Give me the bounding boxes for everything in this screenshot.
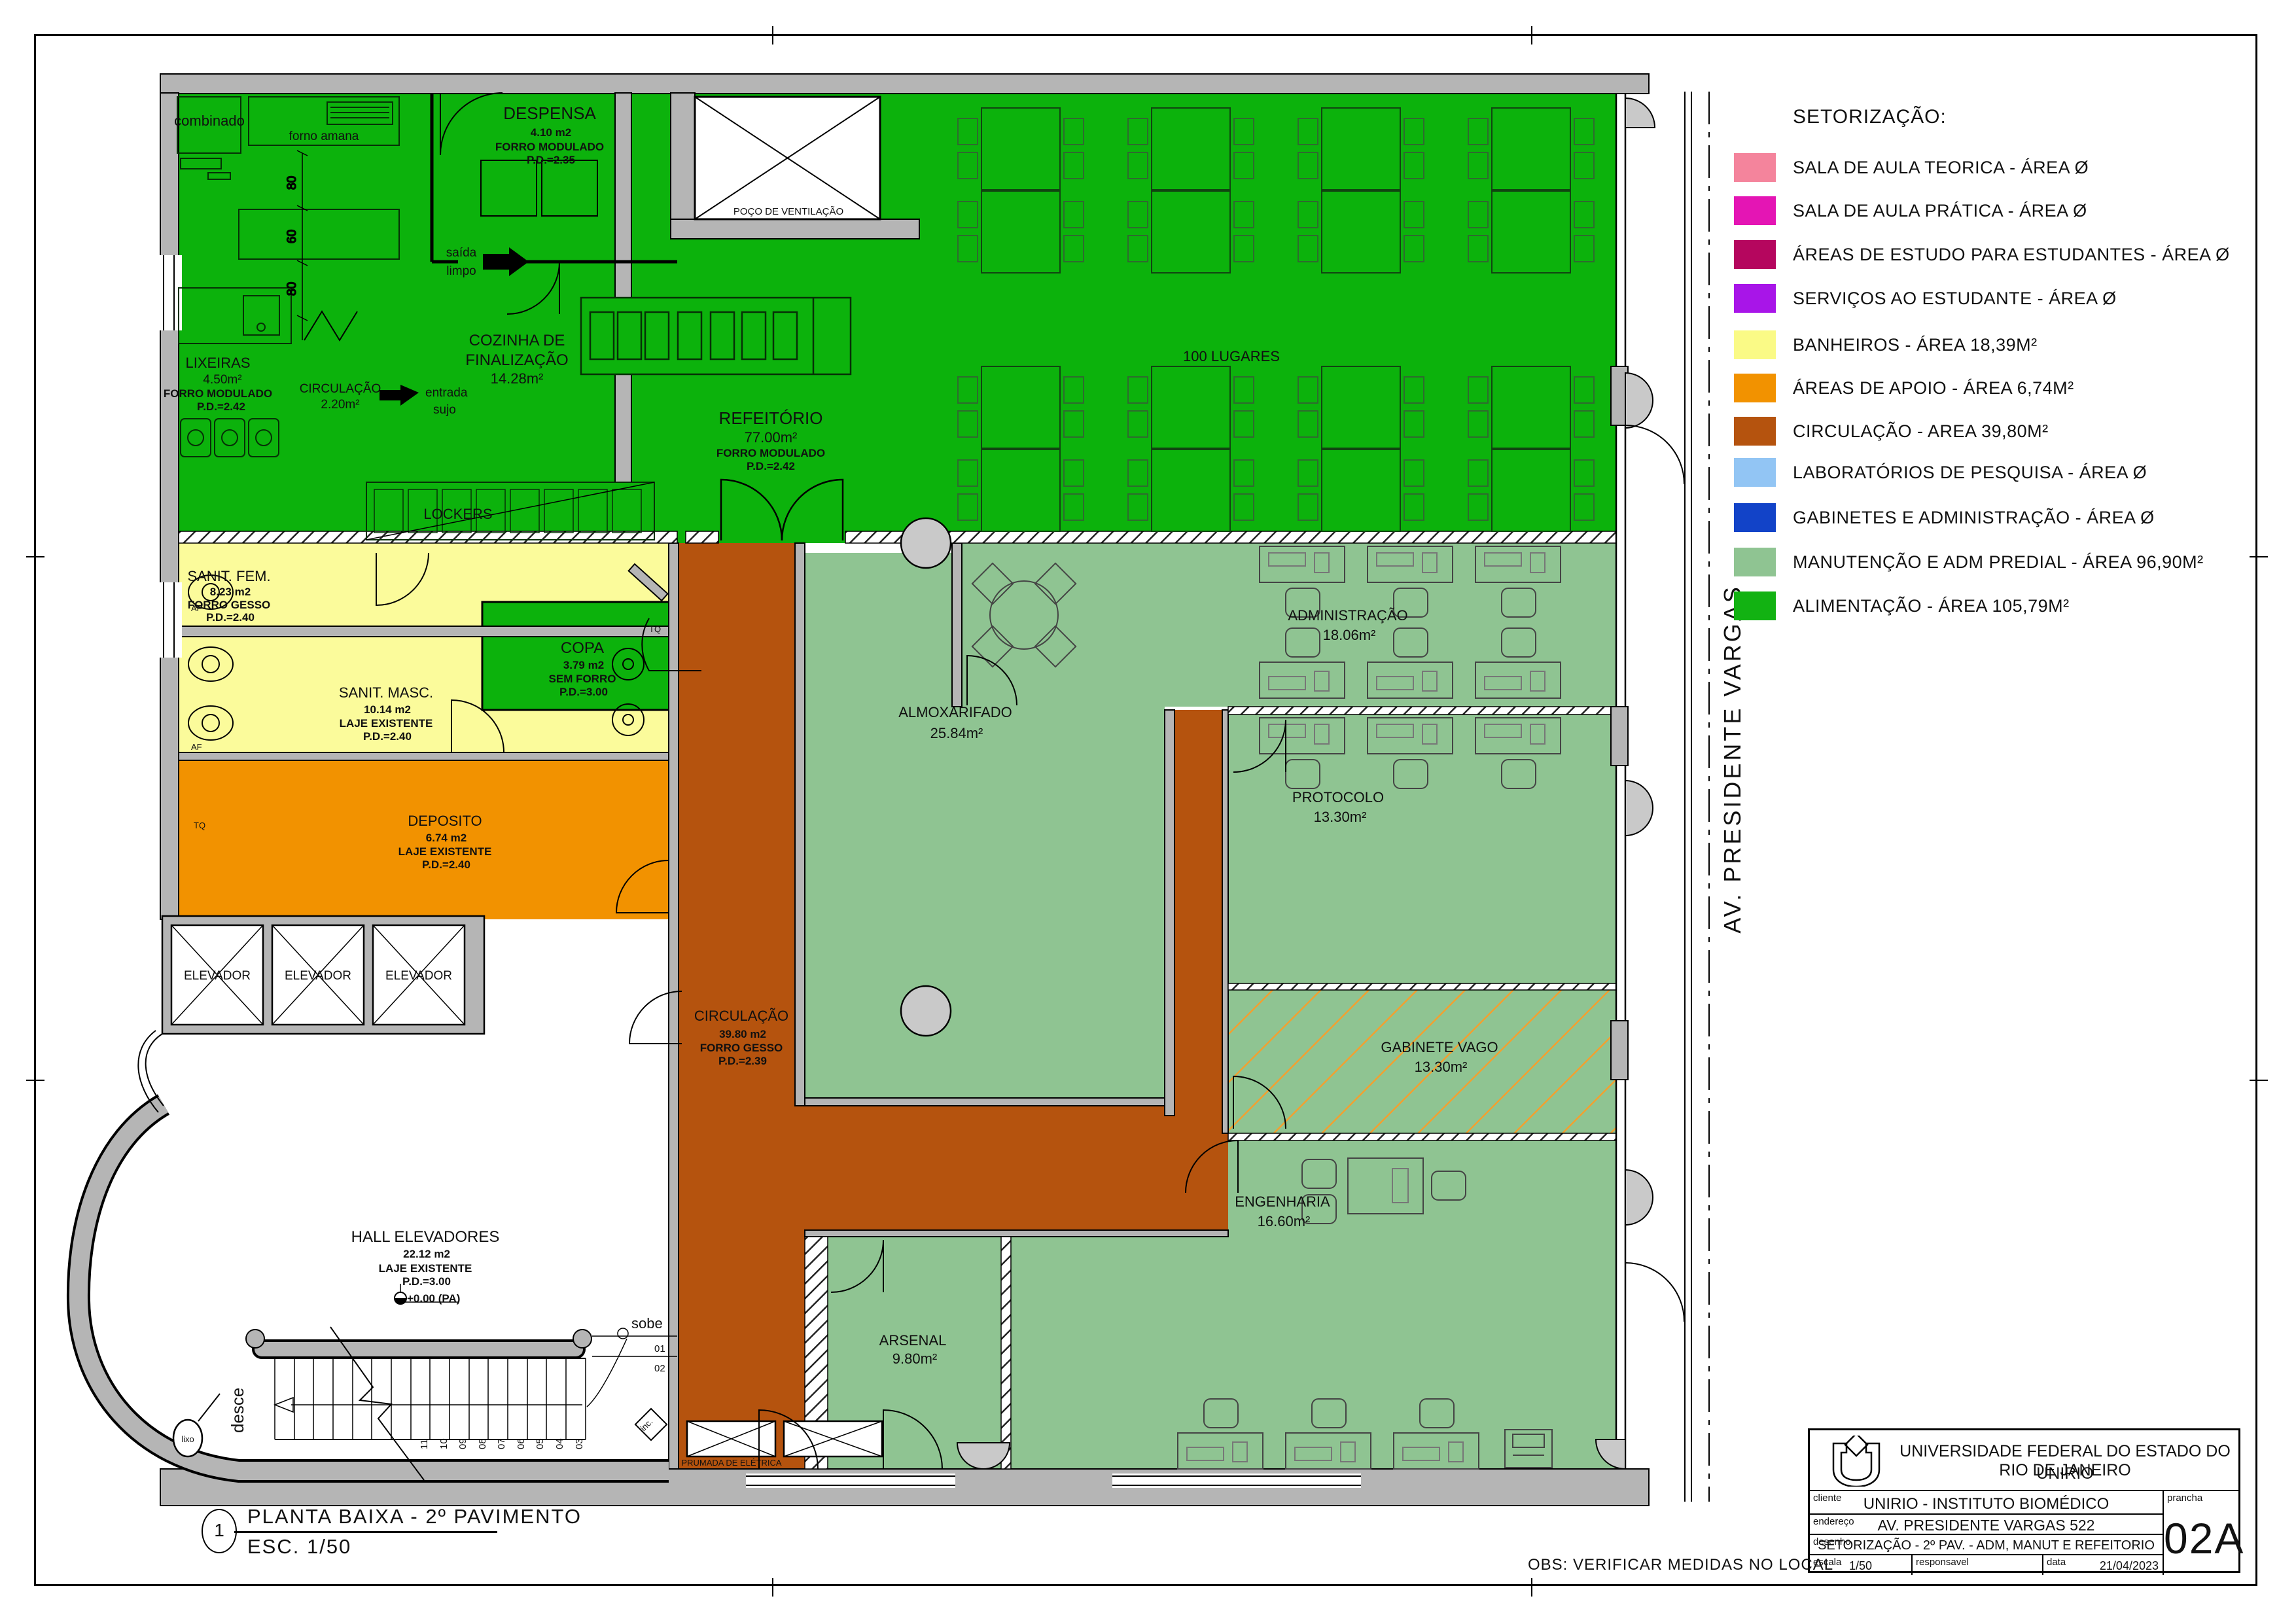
legend-label: ALIMENTAÇÃO - ÁREA 105,79M² xyxy=(1793,591,2070,620)
cozinha-label2: FINALIZAÇÃO xyxy=(465,351,568,369)
legend-row: MANUTENÇÃO E ADM PREDIAL - ÁREA 96,90M² xyxy=(1734,548,2251,576)
step-09: 09 xyxy=(457,1438,468,1449)
gabinete-area: 13.30m² xyxy=(1415,1059,1468,1075)
data-label: data xyxy=(2047,1557,2066,1568)
responsavel-label: responsavel xyxy=(1916,1557,1969,1568)
legend-row: ALIMENTAÇÃO - ÁREA 105,79M² xyxy=(1734,591,2251,620)
legend-title: SETORIZAÇÃO: xyxy=(1793,106,1947,128)
wall-hatch-prot-gab xyxy=(1228,983,1616,990)
cozinha-label1: COZINHA DE xyxy=(469,332,565,349)
administracao-label: ADMINISTRAÇÃO xyxy=(1288,607,1407,624)
copa-label: COPA xyxy=(561,639,604,657)
circulacao-area: 39.80 m2 xyxy=(719,1028,766,1040)
poco-ventilacao: POÇO DE VENTILAÇÃO xyxy=(695,97,880,219)
engenharia-label: ENGENHARIA xyxy=(1235,1193,1330,1210)
wall-masc-dep xyxy=(179,752,677,760)
plan-scale: ESC. 1/50 xyxy=(247,1535,351,1559)
protocolo-label: PROTOCOLO xyxy=(1292,789,1384,805)
poco-label: POÇO DE VENTILAÇÃO xyxy=(733,206,843,217)
wall-poco-left xyxy=(671,93,695,239)
lockers-label: LOCKERS xyxy=(423,506,492,522)
unirio-logo xyxy=(1827,1436,1886,1487)
cozinha-area: 14.28m² xyxy=(491,370,544,387)
refeitorio-forro: FORRO MODULADO xyxy=(716,447,825,459)
legend-row: LABORATÓRIOS DE PESQUISA - ÁREA Ø xyxy=(1734,458,2251,487)
column-semi xyxy=(1625,1170,1653,1225)
elevators: ELEVADOR ELEVADOR ELEVADOR xyxy=(162,916,484,1034)
legend-label: ÁREAS DE APOIO - ÁREA 6,74M² xyxy=(1793,374,2074,402)
legend-row: GABINETES E ADMINISTRAÇÃO - ÁREA Ø xyxy=(1734,503,2251,532)
responsavel-cell: responsavel xyxy=(1913,1555,2043,1575)
almoxarifado-area: 25.84m² xyxy=(930,725,983,741)
hall-level: +0.00 (PA) xyxy=(407,1292,460,1305)
lixo-label: lixo xyxy=(181,1434,194,1444)
legend-label: CIRCULAÇÃO - AREA 39,80M² xyxy=(1793,417,2049,446)
title-underline xyxy=(234,1531,497,1533)
data-value: 21/04/2023 xyxy=(2100,1559,2159,1573)
legend-swatch xyxy=(1734,196,1776,225)
column-top-right xyxy=(1625,98,1655,128)
legend-row: BANHEIROS - ÁREA 18,39M² xyxy=(1734,330,2251,359)
sujo-label: sujo xyxy=(433,403,456,417)
refeitorio-area: 77.00m² xyxy=(745,429,798,446)
administracao-area: 18.06m² xyxy=(1323,627,1376,643)
tq-label: TQ xyxy=(194,821,205,830)
protocolo-area: 13.30m² xyxy=(1314,809,1367,825)
sanit-masc-area: 10.14 m2 xyxy=(364,703,411,716)
view-number-bubble: 1 xyxy=(202,1509,237,1553)
title-block: UNIVERSIDADE FEDERAL DO ESTADO DO RIO DE… xyxy=(1808,1428,2240,1573)
legend-label: BANHEIROS - ÁREA 18,39M² xyxy=(1793,330,2038,359)
zone-engenharia xyxy=(1228,1140,1616,1469)
sanit-masc-label: SANIT. MASC. xyxy=(339,684,433,701)
data-cell: data 21/04/2023 xyxy=(2043,1555,2164,1575)
legend-swatch xyxy=(1734,548,1776,576)
step-07: 07 xyxy=(496,1438,507,1449)
tq-label: TQ xyxy=(649,624,661,634)
legend-row: SERVIÇOS AO ESTUDANTE - ÁREA Ø xyxy=(1734,284,2251,313)
legend-label: SALA DE AULA TEORICA - ÁREA Ø xyxy=(1793,153,2089,182)
wall-admin-left xyxy=(952,543,962,707)
deposito-area: 6.74 m2 xyxy=(426,832,467,844)
elevator-label: ELEVADOR xyxy=(385,969,452,983)
prancha-cell: prancha 02A xyxy=(2164,1491,2238,1575)
cliente-row: cliente UNIRIO - INSTITUTO BIOMÉDICO xyxy=(1810,1491,2164,1515)
obs-note: OBS: VERIFICAR MEDIDAS NO LOCAL xyxy=(1528,1556,1833,1574)
column-semi xyxy=(1625,781,1653,836)
legend-label: LABORATÓRIOS DE PESQUISA - ÁREA Ø xyxy=(1793,458,2147,487)
legend-label: SALA DE AULA PRÁTICA - ÁREA Ø xyxy=(1793,196,2087,225)
legend-label: GABINETES E ADMINISTRAÇÃO - ÁREA Ø xyxy=(1793,503,2155,532)
step-05: 05 xyxy=(535,1438,546,1449)
wall-hatch-arsenal-r xyxy=(1001,1237,1011,1469)
copa-area: 3.79 m2 xyxy=(563,659,604,671)
legend-row: ÁREAS DE ESTUDO PARA ESTUDANTES - ÁREA Ø xyxy=(1734,240,2251,269)
legend-label: SERVIÇOS AO ESTUDANTE - ÁREA Ø xyxy=(1793,284,2117,313)
sobe-label: sobe xyxy=(631,1315,663,1332)
combinado-label: combinado xyxy=(174,113,245,129)
despensa-forro: FORRO MODULADO xyxy=(495,141,604,153)
step-11: 11 xyxy=(419,1439,430,1449)
desenho-value: SETORIZAÇÃO - 2º PAV. - ADM, MANUT E REF… xyxy=(1810,1538,2163,1553)
desenho-row: desenho SETORIZAÇÃO - 2º PAV. - ADM, MAN… xyxy=(1810,1535,2164,1555)
despensa-area: 4.10 m2 xyxy=(531,126,571,139)
legend-swatch xyxy=(1734,458,1776,487)
refeitorio-label: REFEITÓRIO xyxy=(719,408,823,428)
titleblock-header: UNIVERSIDADE FEDERAL DO ESTADO DO RIO DE… xyxy=(1810,1430,2238,1491)
legend-row: SALA DE AULA TEORICA - ÁREA Ø xyxy=(1734,153,2251,182)
sanit-masc-laje: LAJE EXISTENTE xyxy=(340,717,433,730)
step-04: 04 xyxy=(554,1438,565,1449)
sanit-masc-pd: P.D.=2.40 xyxy=(363,730,412,743)
endereco-value: AV. PRESIDENTE VARGAS 522 xyxy=(1810,1517,2163,1534)
circ-serv-area: 2.20m² xyxy=(321,398,359,412)
step-10: 10 xyxy=(438,1438,450,1449)
wall-poco-bottom xyxy=(671,219,919,239)
wall-hatch-ref1 xyxy=(686,531,718,543)
wall-strip-right xyxy=(1222,710,1228,1133)
wall-branch-bottom xyxy=(805,1230,1228,1237)
lixeiras-area: 4.50m² xyxy=(203,373,241,387)
wall-hatch-admin-prot xyxy=(1228,707,1616,715)
forno-label: forno amana xyxy=(289,130,359,143)
wall-corridor-right xyxy=(795,543,805,1106)
zone-circulacao xyxy=(679,543,805,1469)
refeitorio-pd: P.D.=2.42 xyxy=(747,460,795,472)
dim-60: 60 xyxy=(285,230,299,243)
step-03: 03 xyxy=(574,1438,585,1449)
sanit-fem-area: 8.23 m2 xyxy=(210,586,251,598)
legend-swatch xyxy=(1734,417,1776,446)
circ-serv-label: CIRCULAÇÃO xyxy=(300,381,381,396)
wall-hatch-gab-eng xyxy=(1228,1133,1616,1140)
prancha-value: 02A xyxy=(2164,1513,2238,1563)
legend-swatch xyxy=(1734,591,1776,620)
column-round xyxy=(901,986,951,1036)
wall-kitchen-refectory-b xyxy=(615,374,631,482)
legend-swatch xyxy=(1734,374,1776,402)
hall-pd: P.D.=3.00 xyxy=(402,1275,451,1288)
legend-swatch xyxy=(1734,503,1776,532)
step-06: 06 xyxy=(516,1438,527,1449)
copa-forro: SEM FORRO xyxy=(549,673,616,685)
legend-swatch xyxy=(1734,284,1776,313)
legend-swatch xyxy=(1734,240,1776,269)
sanit-fem-label: SANIT. FEM. xyxy=(187,568,270,584)
legend-row: ÁREAS DE APOIO - ÁREA 6,74M² xyxy=(1734,374,2251,402)
lixeiras-label: LIXEIRAS xyxy=(185,355,250,371)
elevator-label: ELEVADOR xyxy=(285,969,351,983)
deposito-laje: LAJE EXISTENTE xyxy=(398,845,492,858)
plan-title: PLANTA BAIXA - 2º PAVIMENTO xyxy=(247,1505,582,1528)
sheet: { "colors":{"green":"#0cb20c","light_gre… xyxy=(0,0,2296,1624)
legend-row: SALA DE AULA PRÁTICA - ÁREA Ø xyxy=(1734,196,2251,225)
zone-circulacao-branch xyxy=(805,1106,1228,1230)
legend-row: CIRCULAÇÃO - AREA 39,80M² xyxy=(1734,417,2251,446)
column-semi xyxy=(1625,373,1653,428)
cliente-value: UNIRIO - INSTITUTO BIOMÉDICO xyxy=(1810,1495,2163,1513)
gabinete-label: GABINETE VAGO xyxy=(1381,1039,1498,1055)
despensa-pd: P.D.=2.35 xyxy=(527,154,575,166)
prancha-label: prancha xyxy=(2167,1492,2202,1504)
almoxarifado-label: ALMOXARIFADO xyxy=(898,704,1012,720)
legend-label: MANUTENÇÃO E ADM PREDIAL - ÁREA 96,90M² xyxy=(1793,548,2204,576)
step-02: 02 xyxy=(654,1363,665,1374)
af-label: AF xyxy=(191,742,202,752)
dim-80a: 80 xyxy=(285,176,299,190)
arsenal-area: 9.80m² xyxy=(892,1350,937,1367)
dim-80b: 80 xyxy=(285,282,299,296)
legend: SETORIZAÇÃO: SALA DE AULA TEORICA - ÁREA… xyxy=(1734,98,2251,641)
af-label: AF xyxy=(191,603,202,613)
endereco-row: endereço AV. PRESIDENTE VARGAS 522 xyxy=(1810,1515,2164,1535)
legend-label: ÁREAS DE ESTUDO PARA ESTUDANTES - ÁREA Ø xyxy=(1793,240,2230,269)
sanit-fem-pd: P.D.=2.40 xyxy=(206,611,255,624)
prumada-label: PRUMADA DE ELÉTRICA xyxy=(681,1458,781,1468)
wall-left xyxy=(160,93,179,919)
org-acronym: UNIRIO xyxy=(1895,1464,2235,1483)
despensa-label: DESPENSA xyxy=(503,103,596,123)
hall-area: 22.12 m2 xyxy=(403,1248,450,1260)
limpo-label: limpo xyxy=(446,264,476,278)
lixeiras-pd: P.D.=2.42 xyxy=(197,400,245,413)
zone-circulacao-strip xyxy=(1174,710,1224,1116)
hall-label: HALL ELEVADORES xyxy=(351,1228,500,1246)
engenharia-area: 16.60m² xyxy=(1258,1213,1311,1229)
wall-fem-masc xyxy=(179,626,677,637)
deposito-label: DEPOSITO xyxy=(408,813,482,829)
entrada-label: entrada xyxy=(425,386,468,400)
stairs: sobe desce 01 02 03 04 05 06 07 08 09 10… xyxy=(228,1315,677,1480)
circulacao-label: CIRCULAÇÃO xyxy=(694,1008,788,1024)
wall-corridor-left xyxy=(669,543,679,1469)
wall-almox-bottom xyxy=(805,1098,1165,1106)
wall-top xyxy=(160,74,1649,94)
column-round xyxy=(901,518,951,568)
lugares-label: 100 LUGARES xyxy=(1183,348,1280,364)
circulacao-forro: FORRO GESSO xyxy=(700,1042,783,1054)
copa-pd: P.D.=3.00 xyxy=(559,686,608,698)
hall-laje: LAJE EXISTENTE xyxy=(379,1262,472,1275)
deposito-pd: P.D.=2.40 xyxy=(422,858,470,871)
legend-swatch xyxy=(1734,330,1776,359)
step-08: 08 xyxy=(477,1438,488,1449)
wall-kitchen-refectory-a xyxy=(615,93,631,298)
circulacao-pd: P.D.=2.39 xyxy=(718,1055,767,1067)
step-01: 01 xyxy=(654,1343,665,1354)
elevator-label: ELEVADOR xyxy=(184,969,251,983)
saida-label: saída xyxy=(446,246,477,260)
desce-label: desce xyxy=(228,1388,247,1433)
wall-hatch-ref2 xyxy=(845,531,1616,543)
lixeiras-forro: FORRO MODULADO xyxy=(164,387,272,400)
arsenal-label: ARSENAL xyxy=(879,1332,947,1349)
wall-almox-right xyxy=(1165,710,1174,1116)
legend-swatch xyxy=(1734,153,1776,182)
